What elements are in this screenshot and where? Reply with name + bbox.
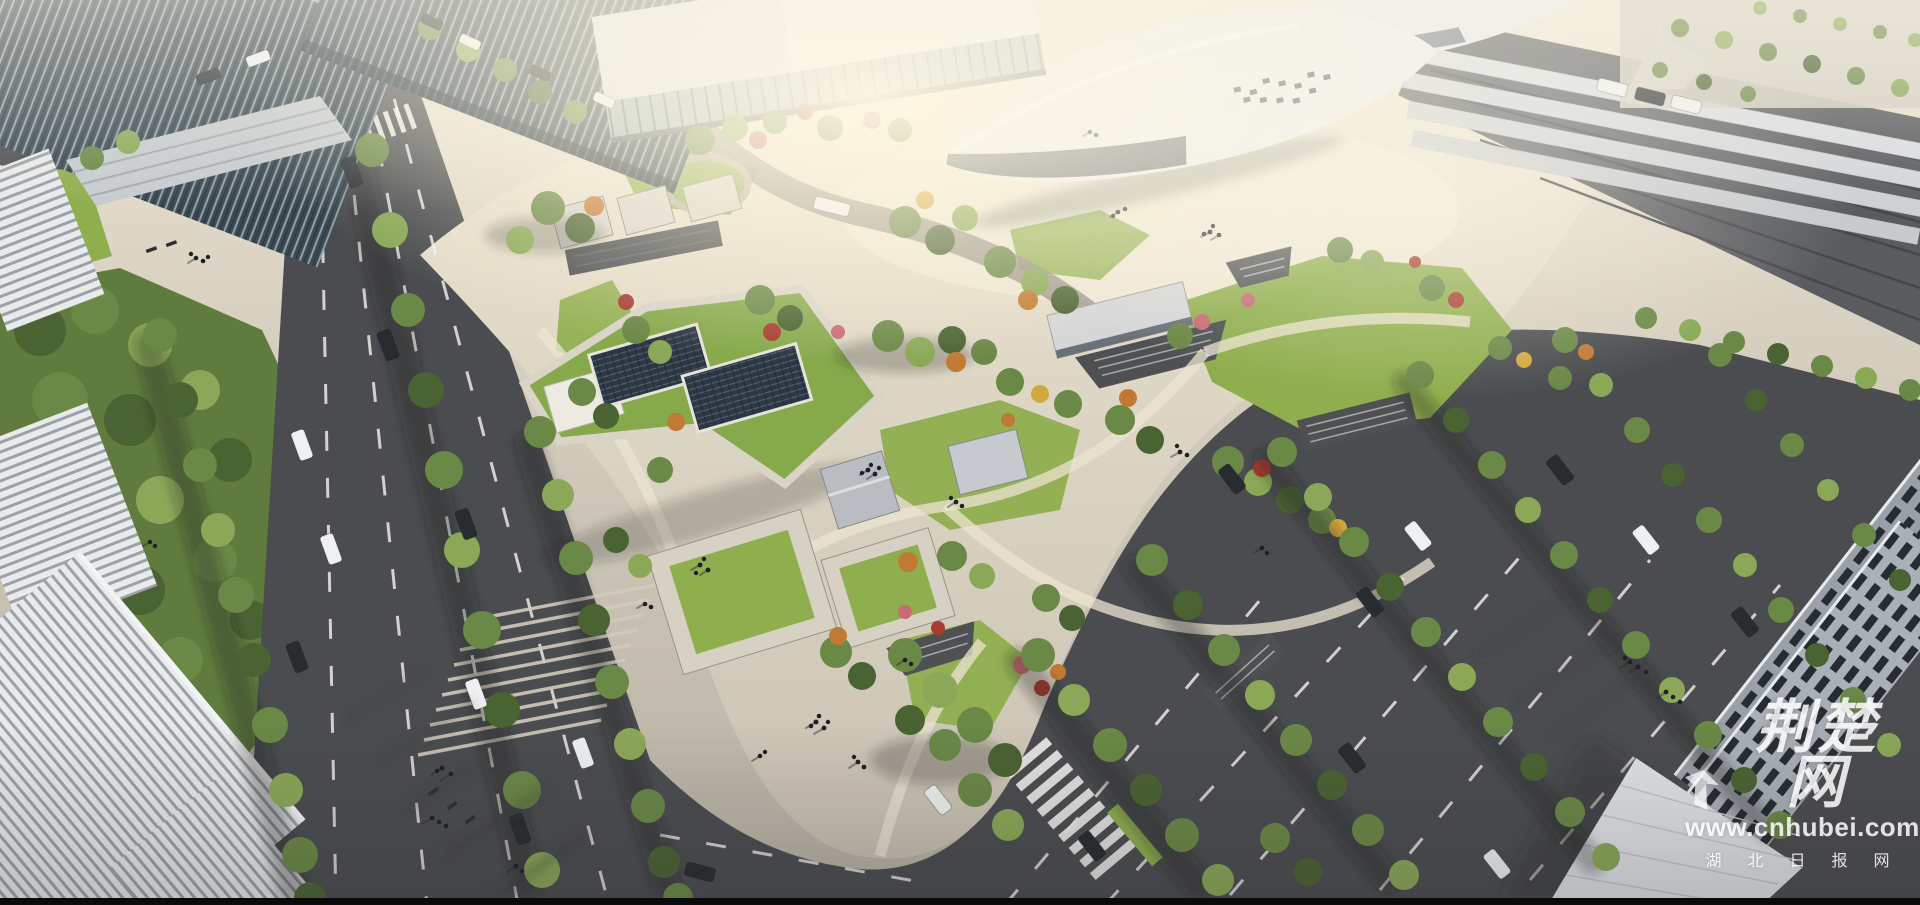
bottom-black-bar [0, 898, 1920, 905]
top-haze [0, 0, 1920, 210]
scene-canvas [0, 0, 1920, 905]
watermark-caption: 湖北日报网 [1685, 847, 1920, 871]
bottom-vignette [0, 720, 1920, 905]
aerial-rendering: 荆楚网 www.cnhubei.com 湖北日报网 [0, 0, 1920, 905]
watermark-site-name: 荆楚网 [1725, 700, 1910, 810]
watermark: 荆楚网 www.cnhubei.com 湖北日报网 [1685, 700, 1910, 871]
jingchu-flag-logo-icon [1685, 770, 1719, 810]
watermark-url: www.cnhubei.com [1685, 812, 1910, 843]
